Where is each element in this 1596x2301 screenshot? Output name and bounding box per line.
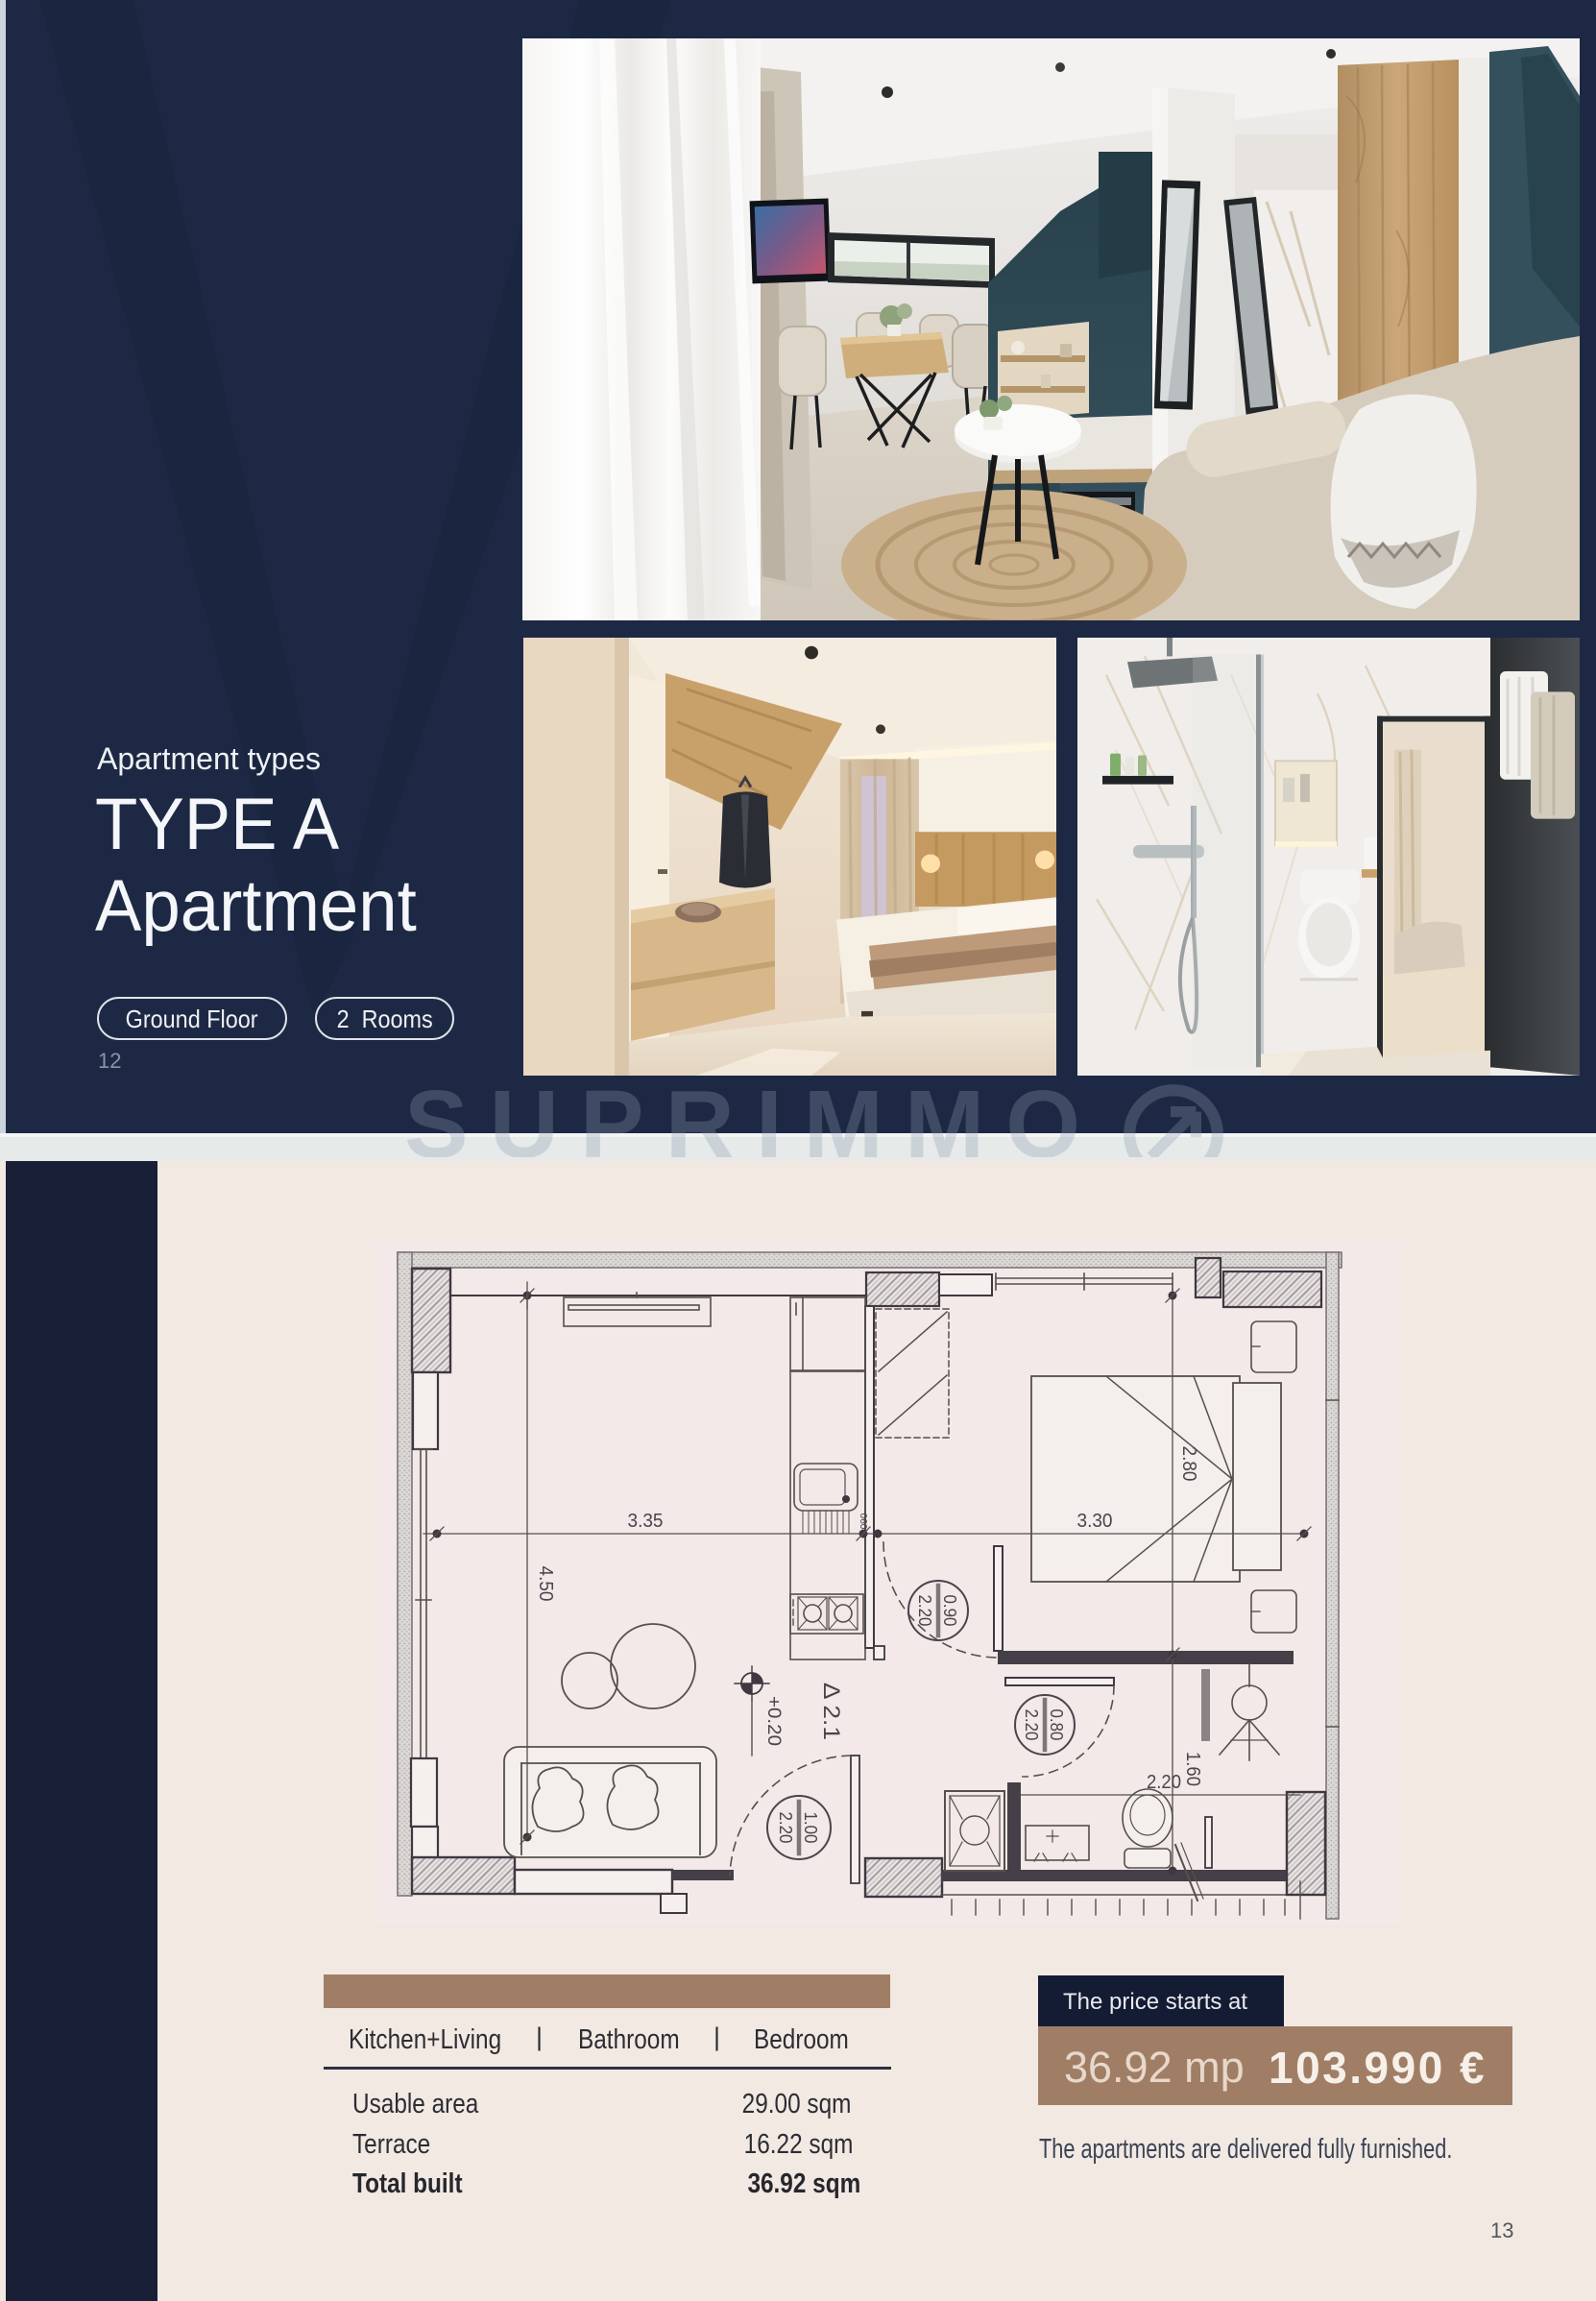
svg-text:+0.20: +0.20 [763,1696,784,1746]
svg-text:2.20: 2.20 [776,1812,795,1844]
svg-text:2.80: 2.80 [1178,1446,1199,1482]
svg-text:2.20: 2.20 [915,1595,934,1627]
svg-text:060: 060 [858,1514,868,1530]
svg-text:2.20: 2.20 [1147,1772,1181,1793]
svg-text:2.20: 2.20 [1022,1709,1041,1741]
svg-text:0.90: 0.90 [940,1595,959,1627]
svg-text:3.30: 3.30 [1077,1511,1113,1532]
svg-text:0.80: 0.80 [1047,1709,1066,1741]
svg-text:1.00: 1.00 [801,1812,820,1844]
svg-text:4.50: 4.50 [535,1566,556,1602]
svg-text:1.60: 1.60 [1182,1752,1203,1786]
svg-text:Δ 2.1: Δ 2.1 [818,1683,844,1740]
svg-text:3.35: 3.35 [628,1511,664,1532]
